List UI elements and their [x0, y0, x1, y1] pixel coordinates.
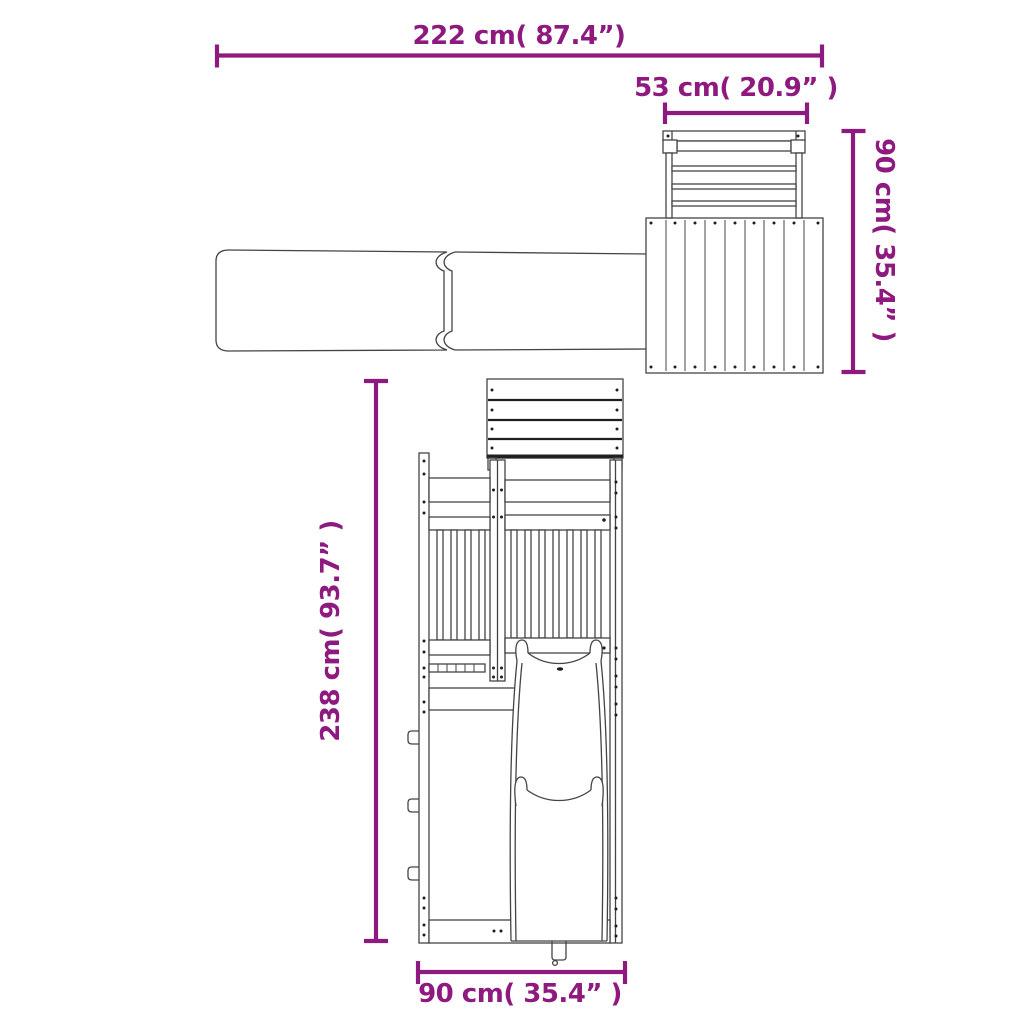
- roof-front-view: [487, 379, 623, 470]
- dim-label-side-height: 90 cm( 35.4” ): [869, 138, 899, 342]
- slide-bottom-rail: [455, 349, 647, 350]
- railing-top-view: [663, 131, 805, 218]
- slide-top-view-lower: [216, 250, 447, 351]
- right-bay-front-view: [505, 480, 610, 653]
- slide-joint-seam: [444, 252, 455, 350]
- dim-label-total-height: 238 cm( 93.7” ): [316, 520, 346, 741]
- dim-line-total-height: [364, 381, 388, 941]
- climbing-holds: [408, 731, 419, 880]
- left-outer-post: [419, 453, 429, 943]
- slide-top-rail: [455, 252, 647, 254]
- dim-line-side-height: [842, 131, 866, 372]
- slide-exit-bolt: [553, 961, 558, 966]
- dim-label-overall-width: 222 cm( 87.4”): [413, 21, 626, 51]
- dim-line-top-depth: [665, 103, 807, 125]
- product-dimension-diagram: 222 cm( 87.4”) 53 cm( 20.9” ) 90 cm( 35.…: [0, 0, 1024, 1024]
- slide-exit-tab: [552, 941, 566, 960]
- dim-label-top-depth: 53 cm( 20.9” ): [634, 73, 838, 103]
- platform-top-view: [646, 218, 823, 373]
- dim-label-base-width: 90 cm( 35.4” ): [418, 979, 622, 1009]
- top-view-drawing: [216, 131, 823, 373]
